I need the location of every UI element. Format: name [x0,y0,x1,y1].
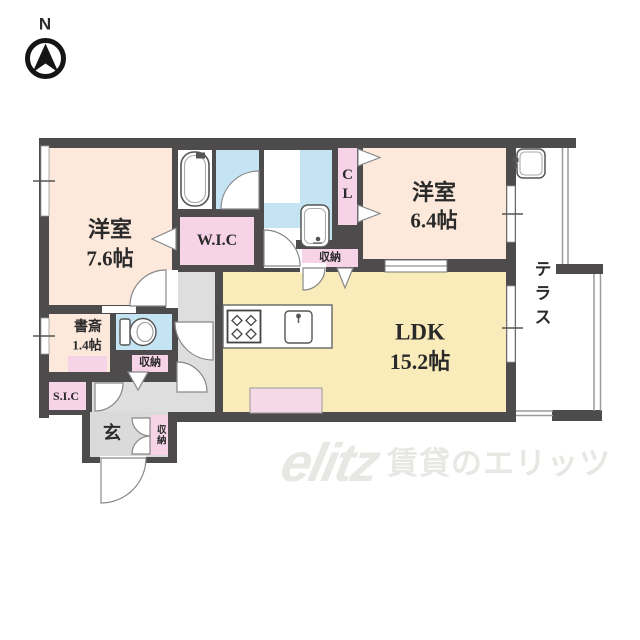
ldk-area: 15.2帖 [390,351,451,373]
floor-plan-image: elitz 賃貸のエリッツ [0,0,640,640]
bedroom-right-name: 洋室 [412,182,456,204]
storage-by-entrance-label: 収納 [154,425,164,446]
storage-by-toilet-label: 収納 [139,358,161,369]
cl-label: CL [340,167,355,205]
bedroom-right-area: 6.4帖 [410,211,457,232]
labels-layer: N 洋室 7.6帖 洋室 6.4帖 LDK 15.2帖 W.I.C CL 書斎 … [0,0,640,640]
sic-label: S.I.C [53,390,79,402]
study-name: 書斎 [74,321,102,335]
terrace-label: テラス [533,260,550,332]
entrance-label: 玄 [103,424,121,442]
bedroom-left-name: 洋室 [88,219,132,241]
storage-by-cl-label: 収納 [319,253,341,264]
ldk-name: LDK [395,321,445,344]
wic-label: W.I.C [197,233,237,249]
compass-north-label: N [39,16,51,33]
bedroom-left-area: 7.6帖 [86,249,133,270]
study-area: 1.4帖 [72,339,101,352]
